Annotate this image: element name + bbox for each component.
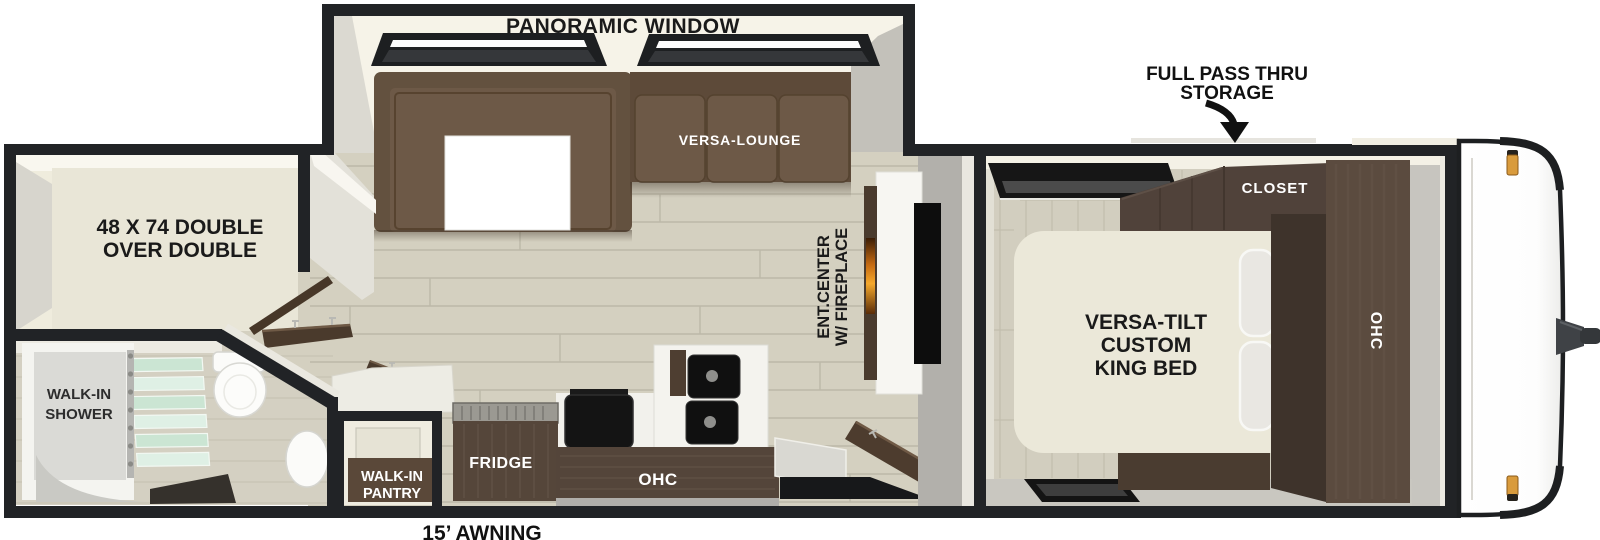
svg-text:CLOSET: CLOSET — [1242, 180, 1309, 197]
svg-text:VERSA-TILT: VERSA-TILT — [1085, 311, 1207, 334]
svg-text:FRIDGE: FRIDGE — [469, 455, 532, 472]
svg-text:SHOWER: SHOWER — [45, 406, 113, 423]
svg-text:ENT.CENTER: ENT.CENTER — [815, 235, 833, 339]
svg-text:WALK-IN: WALK-IN — [361, 469, 423, 485]
svg-text:PANTRY: PANTRY — [363, 486, 421, 502]
svg-text:VERSA-LOUNGE: VERSA-LOUNGE — [679, 132, 801, 148]
svg-text:PANORAMIC WINDOW: PANORAMIC WINDOW — [506, 15, 740, 38]
svg-text:STORAGE: STORAGE — [1180, 83, 1274, 104]
svg-text:FULL PASS THRU: FULL PASS THRU — [1146, 64, 1308, 85]
svg-text:CUSTOM: CUSTOM — [1101, 334, 1192, 357]
svg-text:OVER DOUBLE: OVER DOUBLE — [103, 239, 257, 262]
svg-text:OHC: OHC — [1367, 312, 1384, 351]
svg-text:OHC: OHC — [638, 470, 677, 489]
svg-text:KING BED: KING BED — [1095, 357, 1198, 380]
svg-text:48 X 74 DOUBLE: 48 X 74 DOUBLE — [97, 216, 264, 239]
svg-text:WALK-IN: WALK-IN — [47, 386, 111, 403]
svg-text:15’ AWNING: 15’ AWNING — [422, 522, 541, 540]
svg-text:W/ FIREPLACE: W/ FIREPLACE — [833, 228, 851, 346]
